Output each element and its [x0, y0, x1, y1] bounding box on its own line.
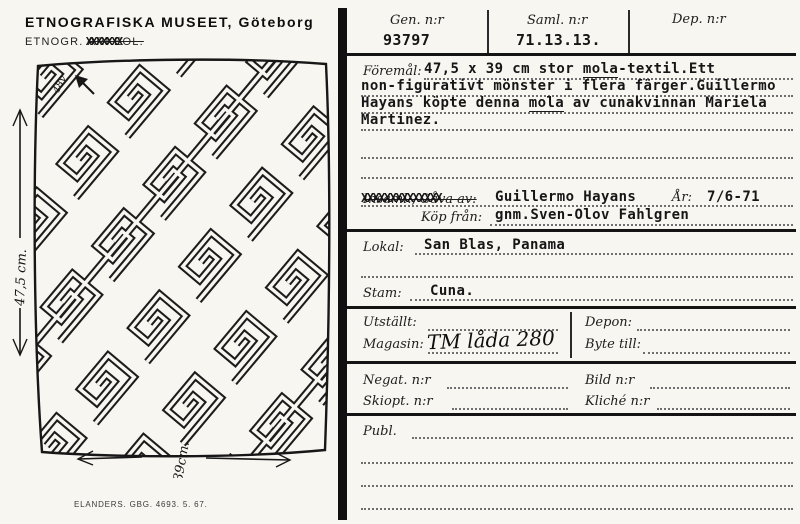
kop-fran-label: Köp från:: [421, 210, 482, 225]
mola-pattern: [0, 48, 340, 478]
stam-value: Cuna.: [430, 283, 474, 299]
catalog-card: ETNOGRAFISKA MUSEET, Göteborg ETNOGR. AR…: [0, 0, 800, 524]
rule-2: [347, 229, 796, 232]
institution-name: ETNOGRAFISKA MUSEET, Göteborg: [25, 14, 314, 30]
blank-rule-4: [361, 462, 793, 464]
gen-nr-value: 93797: [383, 31, 430, 49]
skiopt-nr-label: Skiopt. n:r: [363, 394, 433, 409]
lokal-value: San Blas, Panama: [424, 237, 565, 253]
depon-rule: [637, 329, 790, 331]
insaml-x-overlay: XXXXXXXXXXXXXX: [361, 191, 441, 205]
byte-till-label: Byte till:: [585, 337, 641, 352]
rule-5: [347, 413, 796, 416]
header-divider-2: [628, 10, 630, 54]
department-line: ETNOGR. ARKEOL. XXXXXXX: [25, 36, 144, 48]
blank-rule-5: [361, 485, 793, 487]
kop-fran-value: gnm.Sven-Olov Fahlgren: [495, 207, 689, 223]
negat-rule: [447, 387, 568, 389]
publ-rule: [412, 437, 793, 439]
byte-till-rule: [643, 352, 790, 354]
mola-sketch: 48v 47,5 cm. 39cm.: [0, 48, 340, 478]
year-value: 7/6-71: [707, 189, 760, 205]
skiopt-rule: [452, 408, 568, 410]
foremal-label: Föremål:: [363, 64, 422, 79]
printer-code: ELANDERS. GBG. 4693. 5. 67.: [74, 500, 208, 509]
blank-rule-1: [361, 157, 793, 159]
kliche-nr-label: Kliché n:r: [585, 394, 649, 409]
blank-rule-3: [361, 276, 793, 278]
depon-label: Depon:: [585, 315, 632, 330]
blank-rule-2: [361, 177, 793, 179]
divider-bar: [338, 8, 347, 520]
year-label: År:: [672, 190, 692, 205]
dept-prefix: ETNOGR.: [25, 36, 84, 48]
kliche-rule: [657, 408, 790, 410]
width-dimension-label: 39cm.: [171, 440, 193, 478]
magasin-value: TM låda 280: [427, 326, 556, 354]
rule-4: [347, 361, 796, 364]
blank-rule-6: [361, 508, 793, 510]
height-dimension: 47,5 cm.: [13, 110, 30, 355]
gen-nr-label: Gen. n:r: [390, 13, 444, 28]
stam-rule: [410, 299, 793, 301]
publ-label: Publ.: [363, 424, 397, 439]
foremal-line-4: Martinez.: [361, 112, 793, 131]
saml-nr-value: 71.13.13.: [516, 31, 601, 49]
saml-nr-label: Saml. n:r: [527, 13, 587, 28]
magasin-label: Magasin:: [363, 337, 424, 352]
storage-divider: [570, 312, 572, 358]
bild-nr-label: Bild n:r: [585, 373, 634, 388]
dep-nr-label: Dep. n:r: [672, 12, 726, 27]
negat-nr-label: Negat. n:r: [363, 373, 431, 388]
header-divider-1: [487, 10, 489, 54]
height-dimension-label: 47,5 cm.: [13, 249, 30, 307]
collector-value: Guillermo Hayans: [495, 189, 636, 205]
stam-label: Stam:: [363, 286, 402, 301]
bild-rule: [650, 387, 790, 389]
dept-x-overlay: XXXXXXX: [86, 35, 122, 48]
utstallt-label: Utställt:: [363, 315, 417, 330]
rule-3: [347, 306, 796, 309]
dept-struck-word: ARKEOL. XXXXXXX: [88, 36, 144, 48]
lokal-rule: [415, 253, 793, 255]
kop-fran-rule: [490, 224, 793, 226]
rule-1: [347, 53, 796, 56]
lokal-label: Lokal:: [363, 240, 404, 255]
